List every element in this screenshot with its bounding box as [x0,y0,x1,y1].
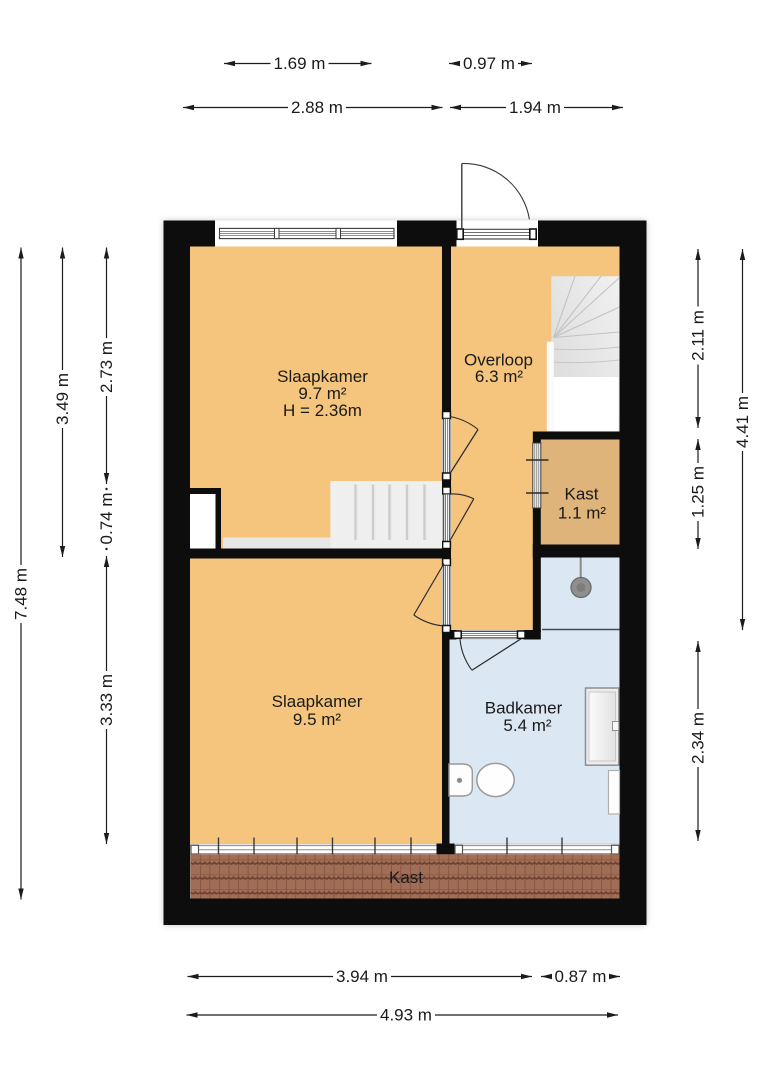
svg-text:0.74 m: 0.74 m [97,493,116,545]
svg-text:0.97 m: 0.97 m [463,54,515,73]
svg-text:Badkamer: Badkamer [485,699,563,718]
svg-text:1.69 m: 1.69 m [274,54,326,73]
svg-text:0.87 m: 0.87 m [555,967,607,986]
svg-text:Kast: Kast [564,485,598,504]
svg-text:2.88 m: 2.88 m [291,98,343,117]
svg-text:2.34 m: 2.34 m [689,712,708,764]
svg-text:4.41 m: 4.41 m [733,396,752,448]
svg-text:3.33 m: 3.33 m [97,674,116,726]
svg-text:2.73 m: 2.73 m [97,341,116,393]
svg-text:1.94 m: 1.94 m [509,98,561,117]
svg-text:3.94 m: 3.94 m [336,967,388,986]
svg-text:1.25 m: 1.25 m [689,466,708,518]
svg-text:5.4 m²: 5.4 m² [503,716,552,735]
svg-text:Kast: Kast [389,868,423,887]
svg-text:6.3 m²: 6.3 m² [475,367,524,386]
svg-text:4.93 m: 4.93 m [380,1006,432,1025]
svg-text:Slaapkamer: Slaapkamer [272,692,363,711]
svg-text:2.11 m: 2.11 m [689,310,708,361]
svg-text:3.49 m: 3.49 m [53,373,72,425]
svg-text:9.5 m²: 9.5 m² [293,710,342,729]
svg-text:7.48 m: 7.48 m [12,568,31,620]
svg-text:H = 2.36m: H = 2.36m [283,401,362,420]
svg-text:1.1 m²: 1.1 m² [558,504,607,523]
